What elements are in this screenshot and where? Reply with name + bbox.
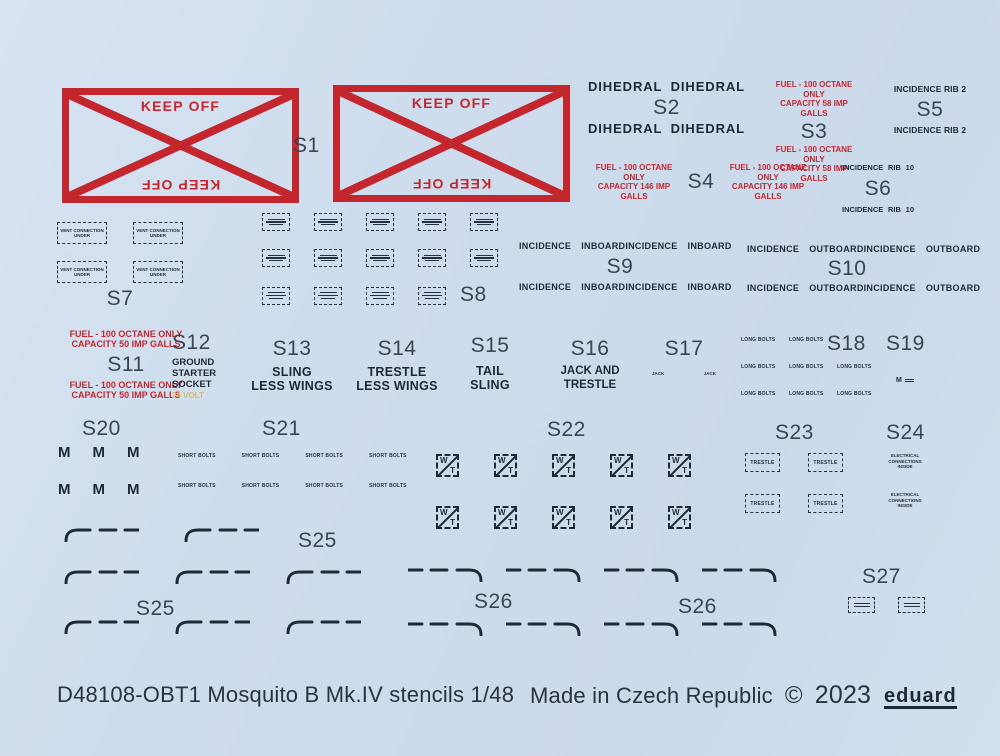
long-bolts-row: LONG BOLTS LONG BOLTSLONG BOLTS [741, 364, 885, 370]
incidence-row: INCIDENCE OUTBOARD INCIDENCE OUTBOARD [747, 244, 947, 254]
word: INBOARD [688, 241, 732, 251]
long-bolts-stencil: LONG BOLTS [789, 391, 837, 397]
dashed-hook-line [285, 568, 361, 584]
t-letter: T [450, 518, 455, 527]
word: 10 [906, 163, 914, 172]
line: SOCKET [172, 379, 242, 390]
group-s8: S8 [262, 213, 498, 306]
line: SLING [249, 365, 335, 379]
short-bolts-stencil: SHORT BOLTS [305, 453, 343, 459]
tiny-lines-icon [905, 379, 914, 383]
wt-stencil-box: W T [552, 454, 575, 477]
vent-connection-placard: VENT CONNECTION UNDER [133, 261, 183, 283]
w-letter: W [440, 456, 448, 465]
trestle-row: TRESTLE TRESTLE [745, 453, 843, 472]
jack-row: JACK JACK [649, 371, 719, 376]
origin-line: Made in Czech Republic © 2023 [530, 681, 871, 710]
incidence-outboard-stencil: INCIDENCE OUTBOARD [747, 283, 864, 293]
dashed-hook-line [63, 526, 139, 542]
group-s20: M MM M MM [58, 447, 140, 496]
small-stencil-placard [314, 249, 342, 267]
short-bolts-stencil: SHORT BOLTS [242, 453, 280, 459]
fuel-line1: FUEL - 100 OCTANE ONLY [768, 145, 860, 164]
word: RIB [888, 205, 901, 214]
fuel-line1: FUEL - 100 OCTANE ONLY [768, 80, 860, 99]
t-letter: T [682, 466, 687, 475]
label-s24: S24 [886, 421, 925, 444]
word: 10 [906, 205, 914, 214]
label-s3: S3 [768, 120, 860, 143]
group-s21: SHORT BOLTS SHORT BOLTSSHORT BOLTSSHORT … [178, 453, 407, 489]
label-s12: S12 [172, 331, 242, 354]
made-in-text: Made in Czech Republic [530, 683, 773, 709]
incidence-inboard-stencil: INCIDENCE INBOARD [625, 282, 731, 292]
label-s1: S1 [293, 134, 320, 157]
small-stencil-placard [314, 287, 342, 305]
m-stencil: M [58, 447, 71, 459]
label-s26: S26 [474, 590, 513, 613]
line: GROUND [172, 357, 242, 368]
fuel-line2: CAPACITY 146 IMP GALLS [722, 182, 814, 201]
wt-stencil-box: W T [668, 506, 691, 529]
dihedral-stencil: DIHEDRAL [588, 79, 662, 94]
line: TRESTLE [351, 365, 443, 379]
dihedral-row: DIHEDRAL DIHEDRAL [588, 121, 745, 136]
word: INCIDENCE [864, 244, 916, 254]
label-s26: S26 [678, 595, 717, 618]
w-letter: W [556, 456, 564, 465]
trestle-placard: TRESTLE [745, 453, 780, 472]
dihedral-stencil: DIHEDRAL [671, 79, 745, 94]
keep-off-text-inverted: KEEP OFF [69, 177, 292, 193]
group-s12: S12 GROUND STARTER SOCKET 24 VOLT [172, 331, 242, 401]
keep-off-placard: KEEP OFF KEEP OFF [62, 88, 299, 203]
vent-line2: UNDER [74, 272, 90, 277]
word: INCIDENCE [519, 282, 571, 292]
group-s6: INCIDENCE RIB 10 S6 INCIDENCE RIB 10 [842, 163, 914, 214]
small-stencil-placard [262, 287, 290, 305]
trestle-stencil: TRESTLE LESS WINGS [351, 365, 443, 393]
group-s13: S13 SLING LESS WINGS [249, 337, 335, 393]
w-letter: W [614, 456, 622, 465]
incidence-rib-stencil: INCIDENCE RIB 10 [842, 163, 914, 172]
vent-row: VENT CONNECTION UNDER VENT CONNECTION UN… [57, 261, 183, 283]
placard-row [262, 287, 446, 305]
long-bolts-row: LONG BOLTS LONG BOLTS [741, 337, 885, 343]
short-bolts-stencil: SHORT BOLTS [178, 453, 216, 459]
trestle-placard: TRESTLE [808, 453, 843, 472]
t-letter: T [682, 518, 687, 527]
long-bolts-stencil: LONG BOLTS [837, 364, 885, 370]
incidence-inboard-stencil: INCIDENCE INBOARD [519, 241, 625, 251]
line: SLING [464, 378, 516, 392]
label-s25: S25 [298, 529, 337, 552]
incidence-outboard-stencil: INCIDENCE OUTBOARD [747, 244, 864, 254]
m-stencil: M [127, 484, 140, 496]
dashed-hook-line-mirrored [408, 620, 484, 636]
fuel-line2: CAPACITY 58 IMP GALLS [768, 99, 860, 118]
trestle-placard: TRESTLE [745, 494, 780, 513]
small-stencil-placard [262, 249, 290, 267]
group-s17: S17 JACK JACK [649, 337, 719, 376]
group-s7: VENT CONNECTION UNDER VENT CONNECTION UN… [57, 222, 183, 310]
group-s2: DIHEDRAL DIHEDRAL S2 DIHEDRAL DIHEDRAL [588, 79, 745, 136]
vent-line2: UNDER [150, 233, 166, 238]
small-stencil-placard [848, 597, 875, 613]
incidence-rib-stencil: INCIDENCE RIB 10 [842, 205, 914, 214]
dash-row [408, 566, 778, 582]
w-letter: W [498, 456, 506, 465]
word: OUTBOARD [809, 244, 863, 254]
trestle-placard: TRESTLE [808, 494, 843, 513]
small-stencil-placard [470, 213, 498, 231]
year-text: 2023 [815, 681, 871, 710]
line: INSIDE [884, 464, 926, 470]
word: INCIDENCE [864, 283, 916, 293]
short-bolts-stencil: SHORT BOLTS [369, 453, 407, 459]
wt-stencil-box: W T [436, 506, 459, 529]
dihedral-stencil: DIHEDRAL [671, 121, 745, 136]
t-letter: T [566, 518, 571, 527]
t-letter: T [624, 466, 629, 475]
line: LESS WINGS [351, 379, 443, 393]
keep-off-text: KEEP OFF [69, 98, 292, 114]
wt-row: W T W T W T W T W T [436, 454, 691, 477]
m-stencil: M [127, 447, 140, 459]
small-stencil-placard [418, 249, 446, 267]
eduard-logo: eduard [884, 686, 957, 709]
wt-stencil-box: W T [668, 454, 691, 477]
fuel-line1: FUEL - 100 OCTANE ONLY [588, 163, 680, 182]
line: JACK AND [554, 365, 626, 379]
long-bolts-stencil: LONG BOLTS [837, 391, 885, 397]
placard-row [262, 213, 498, 231]
dashed-hook-line-mirrored [604, 566, 680, 582]
label-s22: S22 [547, 418, 586, 441]
keep-off-text: KEEP OFF [340, 95, 563, 111]
ground-starter-stencil: GROUND STARTER SOCKET 24 VOLT [172, 357, 242, 401]
group-s14: S14 TRESTLE LESS WINGS [351, 337, 443, 393]
t-letter: T [624, 518, 629, 527]
dash-row [63, 526, 259, 542]
vent-connection-placard: VENT CONNECTION UNDER [133, 222, 183, 244]
label-s27: S27 [862, 565, 901, 588]
dashed-hook-line-mirrored [702, 620, 778, 636]
line: TRESTLE [554, 379, 626, 393]
dashed-hook-line-mirrored [408, 566, 484, 582]
incidence-rib-stencil: INCIDENCE RIB 2 [886, 84, 974, 94]
incidence-row: INCIDENCE INBOARD INCIDENCE INBOARD [519, 241, 721, 251]
long-bolts-stencil: LONG BOLTS [741, 364, 789, 370]
vent-line2: UNDER [74, 233, 90, 238]
jack-micro-stencil: JACK [704, 371, 716, 376]
w-letter: W [498, 508, 506, 517]
fuel-stencil: FUEL - 100 OCTANE ONLY CAPACITY 58 IMP G… [768, 80, 860, 118]
dashed-hook-line [285, 618, 361, 634]
short-bolts-stencil: SHORT BOLTS [242, 483, 280, 489]
incidence-rib-stencil: INCIDENCE RIB 2 [886, 125, 974, 135]
sling-stencil: SLING LESS WINGS [249, 365, 335, 393]
group-s22: W T W T W T W T W T W [436, 454, 691, 529]
word: INCIDENCE [842, 205, 883, 214]
dash-row [63, 618, 361, 634]
label-s17: S17 [649, 337, 719, 360]
fuel-line2: CAPACITY 146 IMP GALLS [588, 182, 680, 201]
small-stencil-placard [418, 213, 446, 231]
small-stencil-placard [314, 213, 342, 231]
word: INCIDENCE [519, 241, 571, 251]
short-bolts-row: SHORT BOLTS SHORT BOLTSSHORT BOLTSSHORT … [178, 483, 407, 489]
label-s25: S25 [136, 597, 175, 620]
group-s23: TRESTLE TRESTLE TRESTLE TRESTLE [745, 453, 843, 513]
w-letter: W [556, 508, 564, 517]
word: INCIDENCE [625, 282, 677, 292]
word: INCIDENCE [747, 244, 799, 254]
label-s5: S5 [886, 98, 974, 121]
label-s19: S19 [886, 332, 925, 355]
long-bolts-row: LONG BOLTS LONG BOLTSLONG BOLTS [741, 391, 885, 397]
dashed-hook-line-mirrored [604, 620, 680, 636]
product-title: D48108-OBT1 Mosquito B Mk.IV stencils 1/… [57, 682, 514, 708]
group-s9: INCIDENCE INBOARD INCIDENCE INBOARD S9 I… [519, 241, 721, 292]
group-s4: FUEL - 100 OCTANE ONLY CAPACITY 146 IMP … [588, 163, 814, 201]
label-s21: S21 [262, 417, 301, 440]
label-s16: S16 [554, 337, 626, 360]
w-letter: W [614, 508, 622, 517]
m-stencil: M [93, 484, 106, 496]
long-bolts-stencil: LONG BOLTS [789, 364, 837, 370]
m-micro-stencil: M [896, 377, 902, 384]
dashed-hook-line [174, 618, 250, 634]
small-stencil-placard [470, 249, 498, 267]
label-s23: S23 [775, 421, 814, 444]
t-letter: T [566, 466, 571, 475]
label-s4: S4 [688, 170, 715, 193]
t-letter: T [450, 466, 455, 475]
short-bolts-stencil: SHORT BOLTS [305, 483, 343, 489]
incidence-outboard-stencil: INCIDENCE OUTBOARD [864, 283, 981, 293]
word: INBOARD [581, 282, 625, 292]
line: INSIDE [884, 503, 926, 509]
keep-off-placard: KEEP OFF KEEP OFF [333, 85, 570, 202]
short-bolts-stencil: SHORT BOLTS [178, 483, 216, 489]
dashed-hook-line-mirrored [702, 566, 778, 582]
vent-connection-placard: VENT CONNECTION UNDER [57, 261, 107, 283]
volt-line: 24 VOLT [172, 390, 242, 401]
word: INCIDENCE [842, 163, 883, 172]
fuel-stencil: FUEL - 100 OCTANE ONLY CAPACITY 146 IMP … [722, 163, 814, 201]
group-s18: LONG BOLTS LONG BOLTS LONG BOLTS LONG BO… [741, 337, 885, 397]
line: LESS WINGS [249, 379, 335, 393]
incidence-outboard-stencil: INCIDENCE OUTBOARD [864, 244, 981, 254]
vent-connection-placard: VENT CONNECTION UNDER [57, 222, 107, 244]
group-s15: S15 TAIL SLING [464, 334, 516, 392]
t-letter: T [508, 466, 513, 475]
w-letter: W [672, 508, 680, 517]
keep-off-text-inverted: KEEP OFF [340, 176, 563, 192]
incidence-row: INCIDENCE INBOARD INCIDENCE INBOARD [519, 282, 721, 292]
label-s2: S2 [588, 96, 745, 119]
label-s15: S15 [464, 334, 516, 357]
group-s16: S16 JACK AND TRESTLE [554, 337, 626, 392]
wt-stencil-box: W T [610, 506, 633, 529]
wt-stencil-box: W T [610, 454, 633, 477]
incidence-inboard-stencil: INCIDENCE INBOARD [519, 282, 625, 292]
word: INCIDENCE [747, 283, 799, 293]
incidence-row: INCIDENCE OUTBOARD INCIDENCE OUTBOARD [747, 283, 947, 293]
label-s8: S8 [460, 283, 487, 306]
fuel-line1: FUEL - 100 OCTANE ONLY [722, 163, 814, 182]
line: TAIL [464, 364, 516, 378]
dashed-hook-line [63, 618, 139, 634]
s19-mark: M [896, 377, 914, 384]
wt-stencil-box: W T [494, 506, 517, 529]
trestle-row: TRESTLE TRESTLE [745, 494, 843, 513]
wt-stencil-box: W T [494, 454, 517, 477]
label-s20: S20 [82, 417, 121, 440]
small-stencil-placard [366, 213, 394, 231]
m-stencil: M [93, 447, 106, 459]
decal-sheet: KEEP OFF KEEP OFF S1 KEEP OFF KEEP OFF D… [0, 0, 1000, 756]
word: INBOARD [688, 282, 732, 292]
group-s27 [848, 597, 925, 613]
group-s10: INCIDENCE OUTBOARD INCIDENCE OUTBOARD S1… [747, 244, 947, 293]
electrical-stencil: ELECTRICAL CONNECTIONS INSIDE [884, 492, 926, 509]
small-stencil-placard [418, 287, 446, 305]
placard-row [262, 249, 498, 267]
dashed-hook-line-mirrored [506, 620, 582, 636]
vent-row: VENT CONNECTION UNDER VENT CONNECTION UN… [57, 222, 183, 244]
dashed-hook-line [183, 526, 259, 542]
dash-row [63, 568, 361, 584]
m-stencil: M [58, 484, 71, 496]
t-letter: T [508, 518, 513, 527]
dashed-hook-line-mirrored [506, 566, 582, 582]
incidence-inboard-stencil: INCIDENCE INBOARD [625, 241, 731, 251]
m-row: M MM [58, 484, 140, 496]
dihedral-stencil: DIHEDRAL [588, 121, 662, 136]
short-bolts-stencil: SHORT BOLTS [369, 483, 407, 489]
word: INBOARD [581, 241, 625, 251]
m-row: M MM [58, 447, 140, 459]
word: OUTBOARD [809, 283, 863, 293]
dashed-hook-line [174, 568, 250, 584]
small-stencil-placard [898, 597, 925, 613]
word: OUTBOARD [926, 244, 980, 254]
small-stencil-placard [262, 213, 290, 231]
wt-stencil-box: W T [552, 506, 575, 529]
small-stencil-placard [366, 249, 394, 267]
word: INCIDENCE [625, 241, 677, 251]
vent-line2: UNDER [150, 272, 166, 277]
fuel-stencil: FUEL - 100 OCTANE ONLY CAPACITY 146 IMP … [588, 163, 680, 201]
label-s7: S7 [57, 287, 183, 310]
small-stencil-placard [366, 287, 394, 305]
wt-row: W T W T W T W T W T [436, 506, 691, 529]
word: OUTBOARD [926, 283, 980, 293]
label-s13: S13 [249, 337, 335, 360]
dihedral-row: DIHEDRAL DIHEDRAL [588, 79, 745, 94]
long-bolts-stencil: LONG BOLTS [789, 337, 837, 343]
jack-trestle-stencil: JACK AND TRESTLE [554, 365, 626, 392]
short-bolts-row: SHORT BOLTS SHORT BOLTSSHORT BOLTSSHORT … [178, 453, 407, 459]
label-s10: S10 [747, 257, 947, 280]
long-bolts-stencil: LONG BOLTS [741, 337, 789, 343]
word: RIB [888, 163, 901, 172]
electrical-stencil: ELECTRICAL CONNECTIONS INSIDE [884, 453, 926, 470]
w-letter: W [672, 456, 680, 465]
label-s14: S14 [351, 337, 443, 360]
label-s6: S6 [842, 177, 914, 200]
line: STARTER [172, 368, 242, 379]
group-s5: INCIDENCE RIB 2 S5 INCIDENCE RIB 2 [886, 84, 974, 135]
label-s9: S9 [519, 255, 721, 278]
long-bolts-stencil: LONG BOLTS [741, 391, 789, 397]
copyright-icon: © [785, 682, 803, 710]
w-letter: W [440, 508, 448, 517]
jack-micro-stencil: JACK [652, 371, 664, 376]
tail-sling-stencil: TAIL SLING [464, 364, 516, 392]
dash-row [408, 620, 778, 636]
wt-stencil-box: W T [436, 454, 459, 477]
dashed-hook-line [63, 568, 139, 584]
